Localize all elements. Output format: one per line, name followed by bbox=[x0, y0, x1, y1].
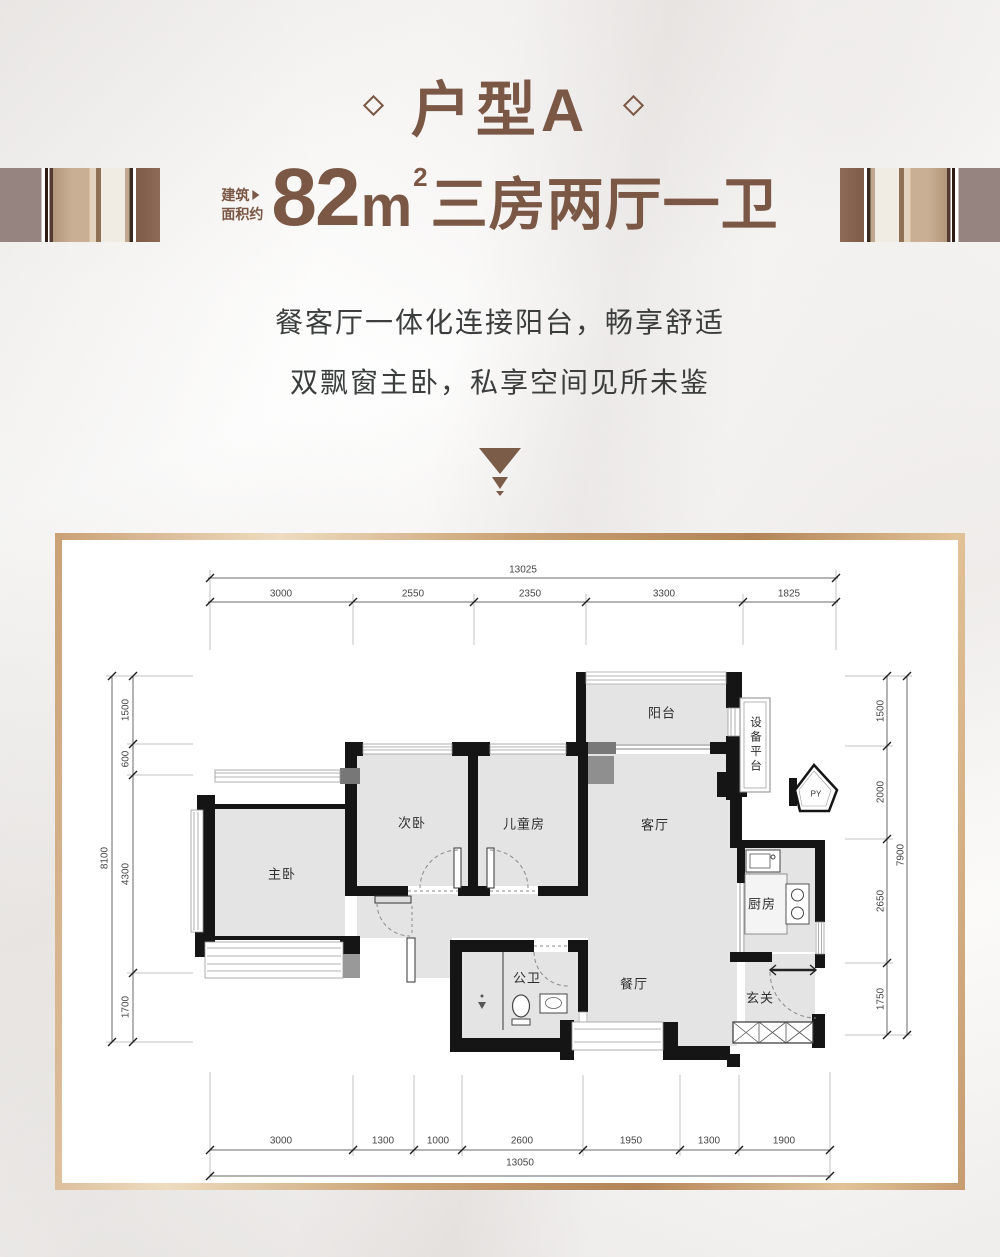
room-label-dining-room: 餐厅 bbox=[620, 974, 648, 993]
area-number: 82 bbox=[271, 164, 358, 231]
room-label-flue: PY bbox=[811, 790, 822, 799]
room-label-entry: 玄关 bbox=[746, 988, 774, 1007]
floorplan-canvas bbox=[62, 540, 958, 1183]
dim-left-seg: 1500 bbox=[121, 699, 132, 721]
dim-left-seg: 1700 bbox=[121, 996, 132, 1018]
page: { "header": { "title": "户型A", "area_labe… bbox=[0, 0, 1000, 1257]
dim-right-seg: 2650 bbox=[876, 890, 887, 912]
area-layout-text: 三房两厅一卫 bbox=[431, 179, 779, 231]
area-unit: m bbox=[361, 182, 413, 231]
dim-right-seg: 1750 bbox=[876, 988, 887, 1010]
area-headline: 建筑 面积约 82 m 2 三房两厅一卫 bbox=[221, 164, 778, 231]
dim-right-seg: 1500 bbox=[876, 700, 887, 722]
dim-top-seg: 1825 bbox=[778, 589, 800, 600]
floorplan-frame bbox=[55, 533, 965, 1190]
dim-right-seg: 2000 bbox=[876, 781, 887, 803]
triangle-down-icon bbox=[478, 448, 522, 496]
area-label-line2: 面积约 bbox=[221, 205, 263, 223]
decor-stripes-left bbox=[0, 168, 160, 242]
room-label-bathroom: 公卫 bbox=[513, 968, 541, 987]
dim-bottom-seg: 1300 bbox=[698, 1136, 720, 1147]
dim-bottom-seg: 1900 bbox=[773, 1136, 795, 1147]
dim-left-seg: 600 bbox=[121, 751, 132, 768]
dim-left-total: 8100 bbox=[100, 847, 111, 869]
dim-bottom-seg: 1300 bbox=[372, 1136, 394, 1147]
dim-bottom-seg: 1950 bbox=[620, 1136, 642, 1147]
dim-right-total: 7900 bbox=[896, 844, 907, 866]
room-label-living-room: 客厅 bbox=[641, 815, 669, 834]
dim-bottom-seg: 2600 bbox=[511, 1136, 533, 1147]
room-label-kitchen: 厨房 bbox=[748, 894, 776, 913]
dim-top-seg: 2550 bbox=[402, 589, 424, 600]
dim-top-seg: 3000 bbox=[270, 589, 292, 600]
room-label-equipment-platform: 设备平台 bbox=[747, 716, 763, 774]
dim-bottom-seg: 1000 bbox=[427, 1136, 449, 1147]
page-title: 户型A bbox=[0, 62, 1000, 149]
room-label-master-bedroom: 主卧 bbox=[268, 864, 296, 883]
room-label-kids-room: 儿童房 bbox=[503, 814, 545, 833]
area-label-line1: 建筑 bbox=[221, 186, 263, 204]
tagline-line1: 餐客厅一体化连接阳台，畅享舒适 bbox=[0, 301, 1000, 341]
dim-top-seg: 2350 bbox=[519, 589, 541, 600]
decor-stripes-right bbox=[840, 168, 1000, 242]
room-label-balcony: 阳台 bbox=[648, 703, 676, 722]
area-label-arrow-icon bbox=[252, 190, 259, 200]
tagline-line2: 双飘窗主卧，私享空间见所未鉴 bbox=[0, 361, 1000, 401]
area-exponent: 2 bbox=[413, 162, 427, 193]
area-label: 建筑 面积约 bbox=[221, 186, 263, 222]
dim-bottom-total: 13050 bbox=[506, 1158, 534, 1169]
room-label-second-bedroom: 次卧 bbox=[398, 813, 426, 832]
dim-left-seg: 4300 bbox=[121, 863, 132, 885]
dim-top-seg: 3300 bbox=[653, 589, 675, 600]
dim-bottom-seg: 3000 bbox=[270, 1136, 292, 1147]
dim-top-total: 13025 bbox=[509, 565, 537, 576]
